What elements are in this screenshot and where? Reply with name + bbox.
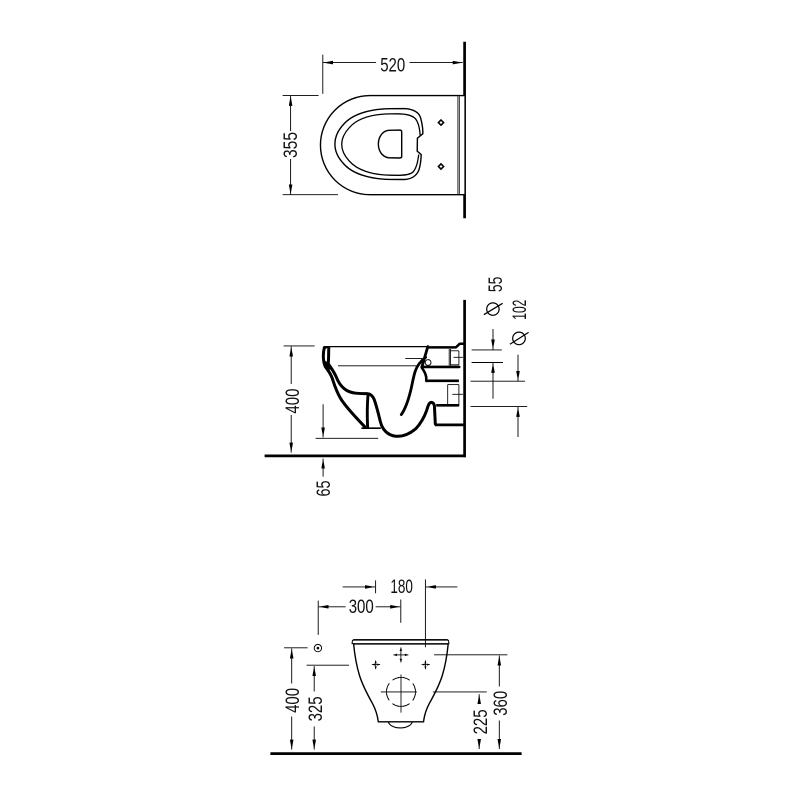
- svg-text:225: 225: [471, 709, 492, 734]
- svg-text:360: 360: [491, 691, 512, 716]
- svg-text:55: 55: [486, 277, 507, 293]
- svg-text:65: 65: [314, 481, 335, 497]
- svg-text:355: 355: [281, 132, 302, 158]
- svg-text:400: 400: [283, 389, 304, 414]
- svg-text:520: 520: [380, 56, 405, 77]
- svg-text:325: 325: [306, 696, 327, 721]
- svg-text:102: 102: [510, 300, 531, 320]
- svg-text:400: 400: [283, 688, 304, 713]
- svg-text:300: 300: [349, 597, 374, 618]
- svg-text:180: 180: [390, 577, 413, 598]
